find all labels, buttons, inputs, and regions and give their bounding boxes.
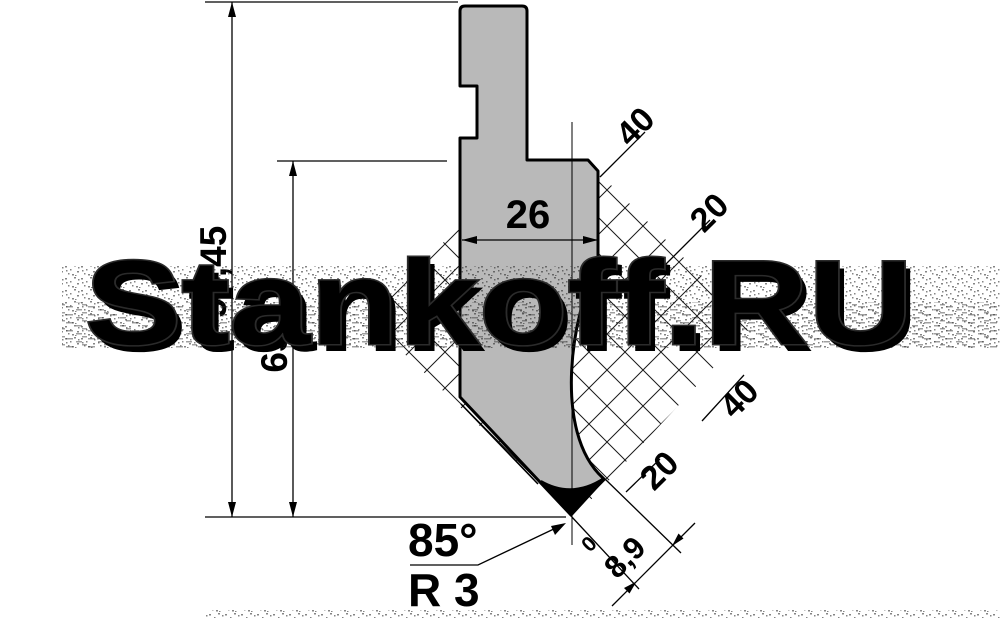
punch-drawing-svg: 95,45 65 26 40 20 40 20 0 8,9 85° R 3 St…	[0, 0, 1000, 618]
grid-label-bottom-20: 20	[633, 444, 687, 498]
tip-angle-label: 85°	[408, 514, 478, 566]
tip-radius-label: R 3	[408, 564, 480, 616]
grid-label-top-40: 40	[609, 100, 663, 154]
dim-body-width: 26	[506, 193, 551, 237]
grid-label-top-20: 20	[683, 186, 737, 240]
watermark-text: Stankoff.RU	[85, 236, 913, 370]
technical-drawing-page: 95,45 65 26 40 20 40 20 0 8,9 85° R 3 St…	[0, 0, 1000, 618]
tip-offset-label: 8,9	[597, 530, 652, 585]
grid-label-bottom-40: 40	[713, 372, 767, 426]
bottom-speckle-strip	[205, 610, 1000, 618]
